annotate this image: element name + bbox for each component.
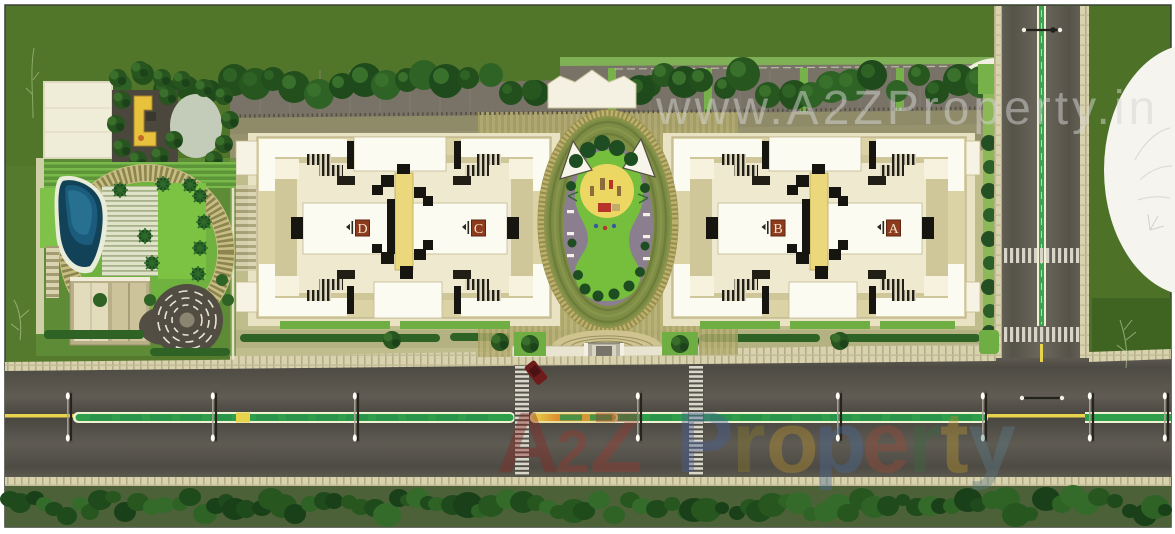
svg-text:p: p — [814, 395, 867, 491]
svg-text:B: B — [773, 222, 782, 237]
svg-text:r: r — [732, 395, 765, 491]
svg-text:o: o — [766, 395, 819, 491]
svg-text:D: D — [357, 222, 367, 237]
svg-text:P: P — [676, 395, 733, 491]
svg-text:y: y — [968, 395, 1016, 491]
svg-text:C: C — [474, 222, 483, 237]
svg-text:A: A — [497, 395, 559, 491]
svg-text:www.A2ZProperty.in: www.A2ZProperty.in — [655, 82, 1159, 135]
svg-text:e: e — [862, 395, 910, 491]
svg-text:A: A — [888, 222, 899, 237]
svg-text:r: r — [908, 395, 941, 491]
svg-text:Z: Z — [590, 395, 643, 491]
svg-text:2: 2 — [556, 418, 589, 485]
svg-text:t: t — [940, 395, 969, 491]
